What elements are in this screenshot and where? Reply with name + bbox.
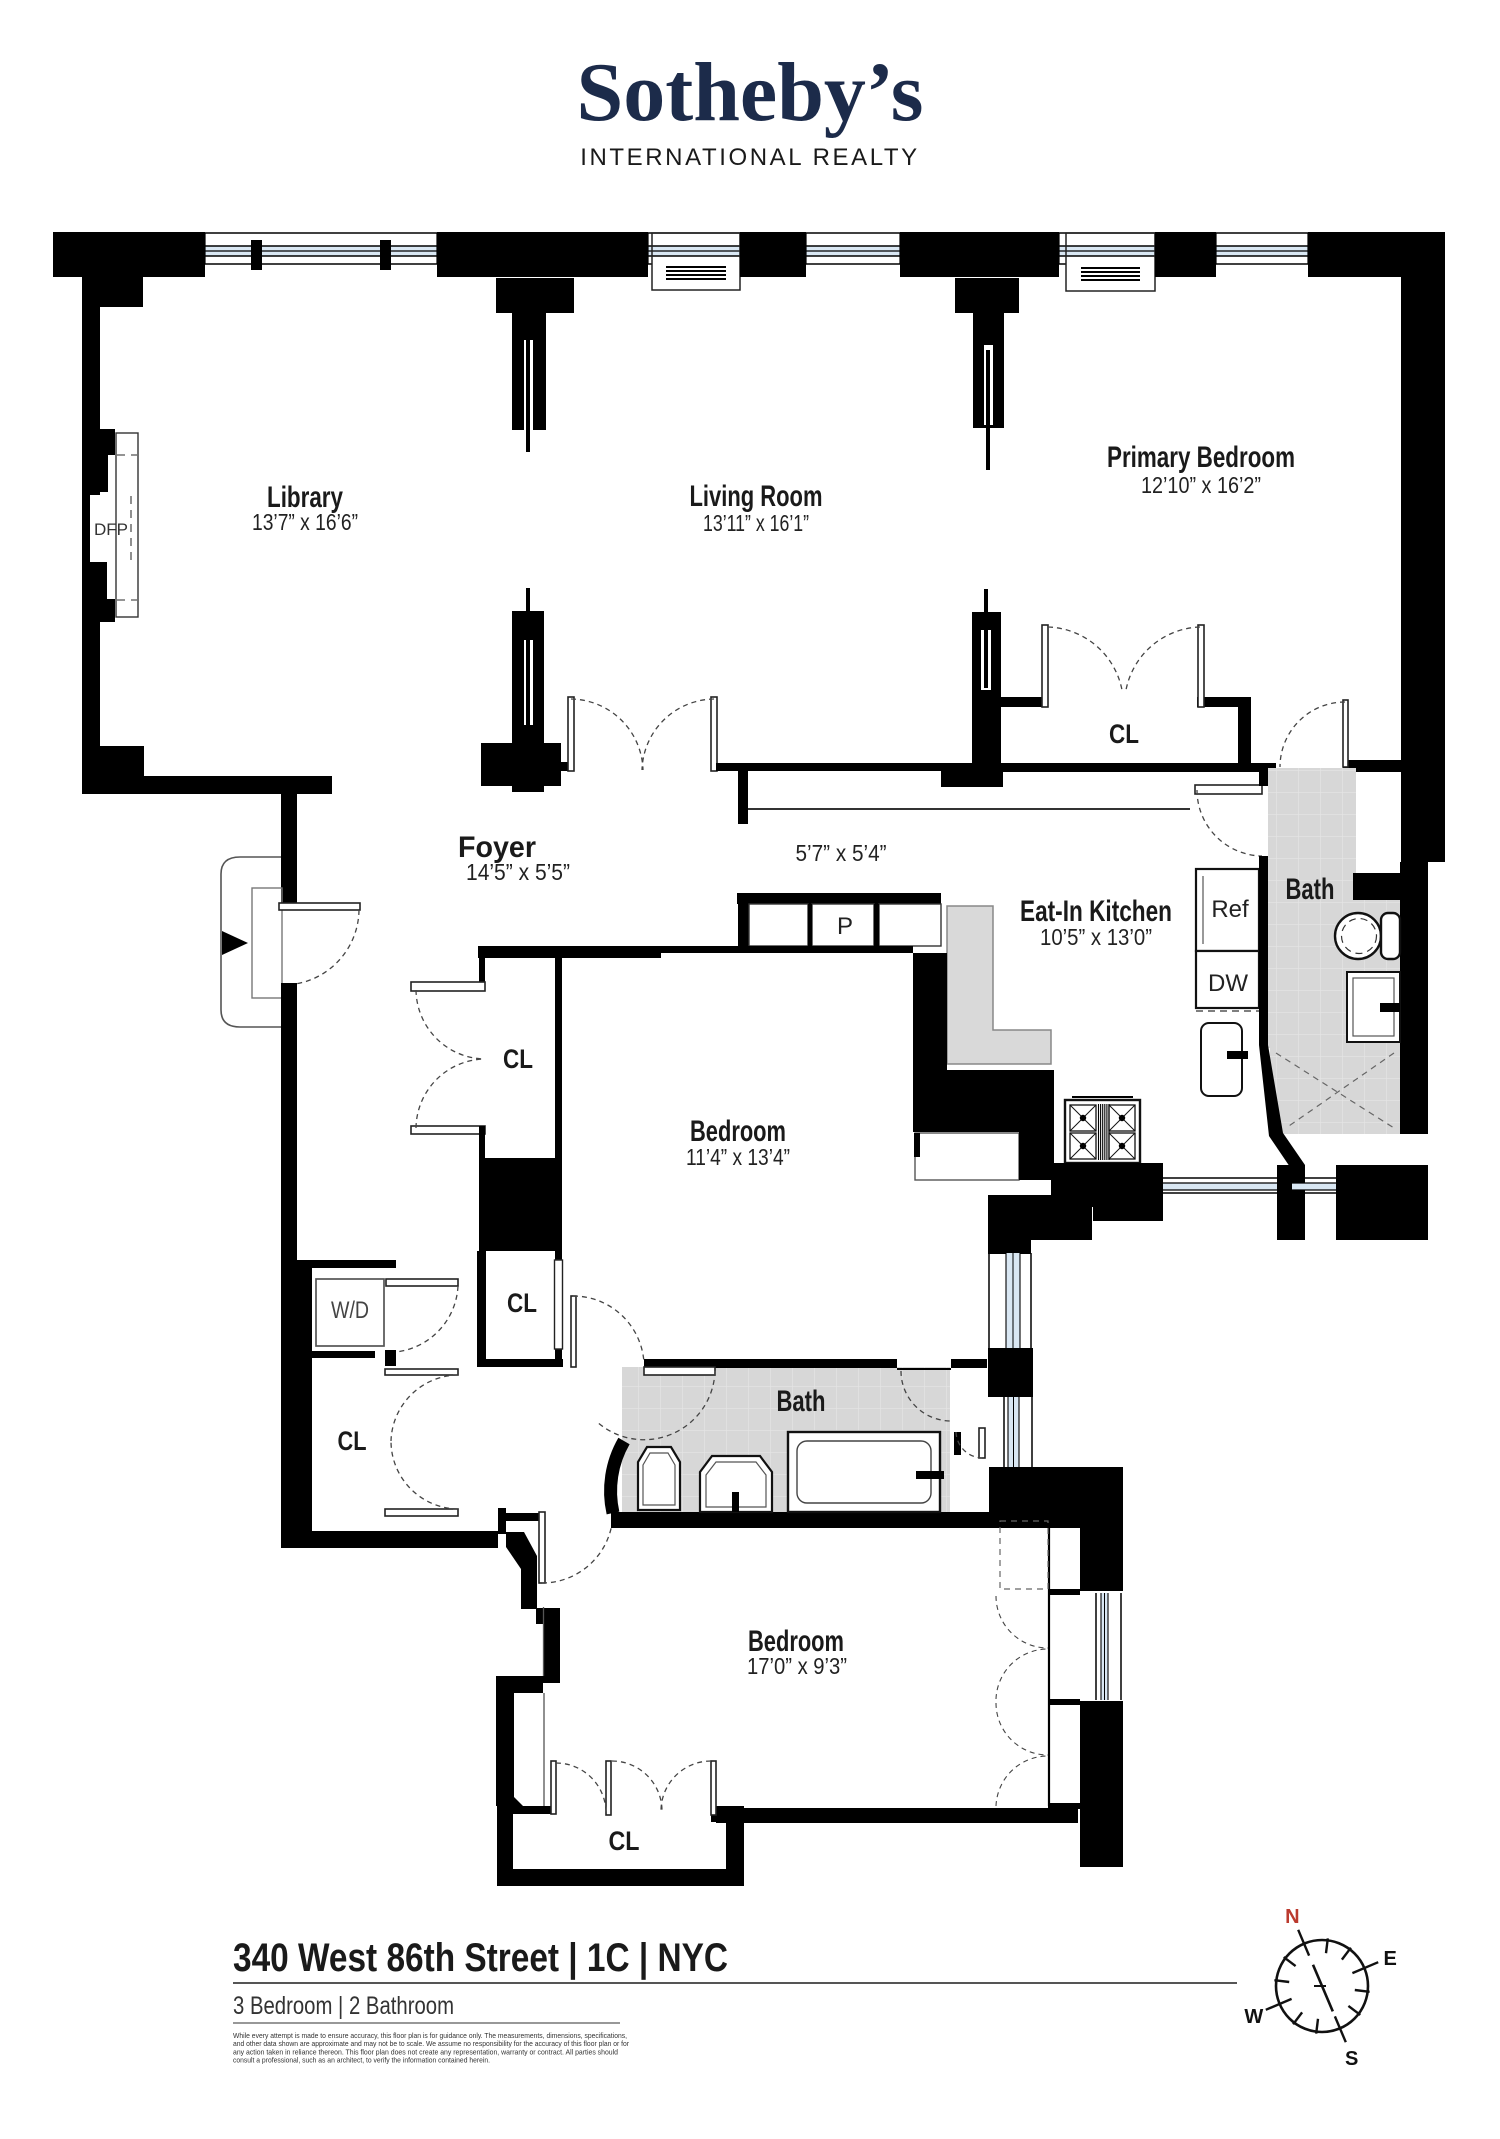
svg-text:340 West 86th Street | 1C | NY: 340 West 86th Street | 1C | NYC	[233, 1936, 728, 1980]
svg-text:13’11” x 16’1”: 13’11” x 16’1”	[703, 510, 809, 536]
svg-text:W/D: W/D	[331, 1297, 369, 1324]
svg-text:11’4” x 13’4”: 11’4” x 13’4”	[686, 1144, 790, 1170]
svg-text:Living Room: Living Room	[690, 480, 823, 513]
svg-text:14’5” x 5’5”: 14’5” x 5’5”	[466, 859, 570, 885]
svg-text:Primary Bedroom: Primary Bedroom	[1107, 441, 1295, 474]
svg-text:13’7” x 16’6”: 13’7” x 16’6”	[252, 509, 358, 535]
svg-text:Bath: Bath	[1286, 873, 1335, 906]
svg-text:CL: CL	[338, 1426, 367, 1456]
svg-text:5’7” x 5’4”: 5’7” x 5’4”	[796, 840, 887, 866]
svg-text:3 Bedroom | 2 Bathroom: 3 Bedroom | 2 Bathroom	[233, 1992, 454, 2020]
svg-text:17’0” x 9’3”: 17’0” x 9’3”	[747, 1653, 847, 1679]
svg-text:Ref: Ref	[1211, 896, 1249, 923]
svg-text:CL: CL	[609, 1826, 640, 1856]
svg-text:E: E	[1383, 1948, 1396, 1970]
svg-text:DFP: DFP	[94, 520, 128, 539]
svg-text:Sotheby’s: Sotheby’s	[577, 46, 924, 139]
svg-text:CL: CL	[507, 1288, 537, 1318]
svg-text:consult a professional, such a: consult a professional, such as an archi…	[233, 2056, 490, 2065]
svg-text:W: W	[1244, 2006, 1263, 2028]
svg-text:DW: DW	[1208, 970, 1248, 997]
svg-text:INTERNATIONAL REALTY: INTERNATIONAL REALTY	[580, 144, 920, 171]
svg-text:N: N	[1285, 1906, 1299, 1928]
svg-text:CL: CL	[1109, 719, 1139, 749]
svg-text:10’5” x 13’0”: 10’5” x 13’0”	[1040, 924, 1152, 950]
svg-text:S: S	[1345, 2048, 1358, 2070]
svg-text:CL: CL	[503, 1044, 533, 1074]
svg-text:Bath: Bath	[777, 1385, 826, 1418]
svg-text:12’10” x 16’2”: 12’10” x 16’2”	[1141, 472, 1261, 498]
svg-text:P: P	[837, 913, 853, 940]
